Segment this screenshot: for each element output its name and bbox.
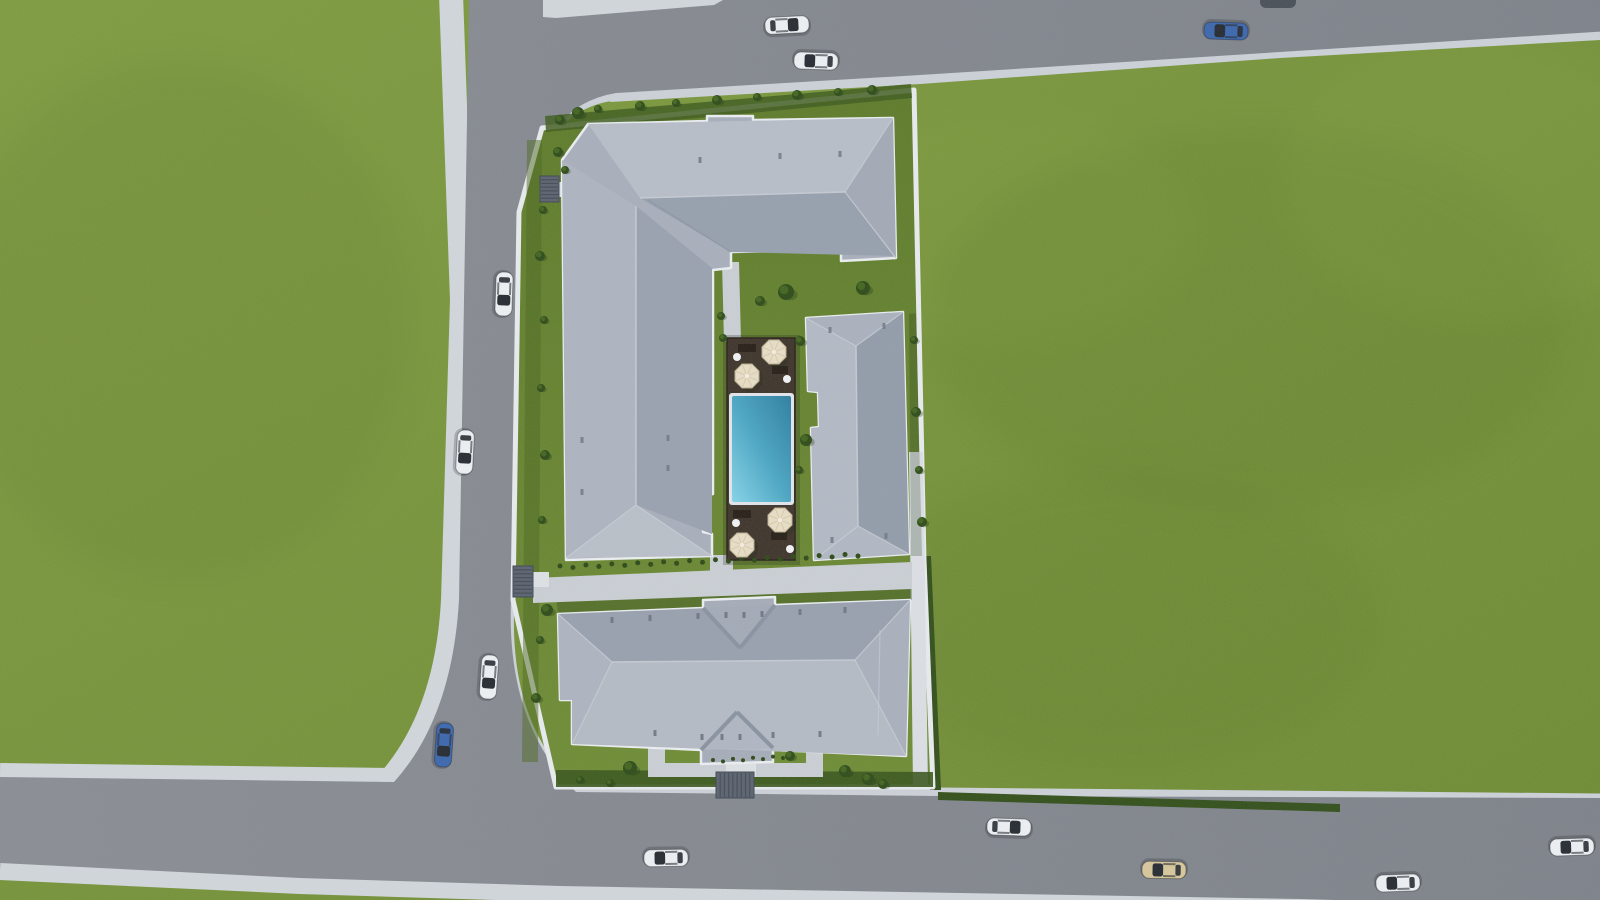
site-plan-render — [0, 0, 1600, 900]
grain-overlay — [0, 0, 1600, 900]
aerial-render-svg — [0, 0, 1600, 900]
